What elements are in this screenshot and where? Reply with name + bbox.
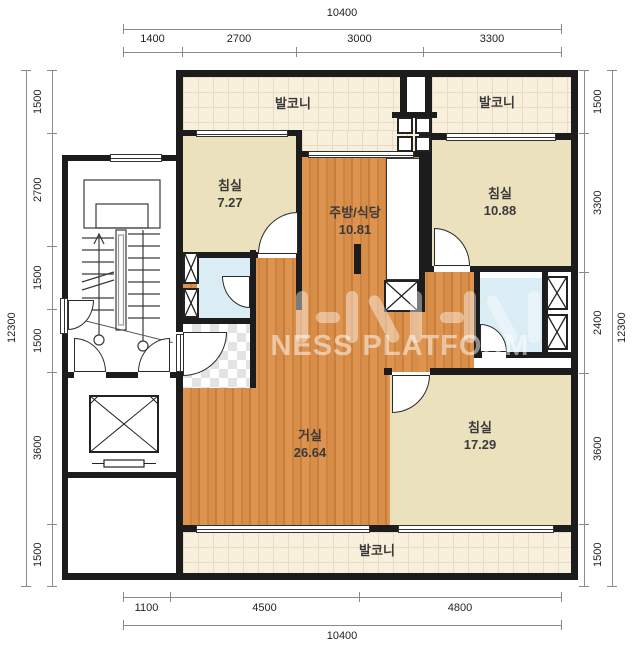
shaft-box	[183, 288, 199, 318]
wall	[62, 155, 68, 580]
wall	[62, 573, 183, 580]
dim-left-seg-5: 1500	[30, 524, 46, 586]
wall	[470, 266, 578, 272]
dimension-line	[123, 597, 561, 598]
dim-right-seg-3: 3600	[590, 373, 606, 524]
wall	[354, 244, 361, 274]
dimension-tick	[123, 24, 124, 34]
dim-left-seg-1: 2700	[30, 133, 46, 246]
duct-box	[397, 117, 413, 134]
room-area: 7.27	[180, 195, 280, 212]
dim-bottom-seg-2: 4800	[359, 601, 561, 615]
dimension-tick	[47, 524, 57, 525]
dim-right-seg-2: 2400	[590, 272, 606, 373]
wall	[425, 140, 432, 272]
dimension-tick	[47, 586, 57, 587]
dimension-tick	[47, 309, 57, 310]
dim-top-total: 10400	[123, 6, 561, 20]
dim-right-total: 12300	[614, 70, 630, 586]
dimension-tick	[123, 47, 124, 57]
window	[308, 151, 414, 158]
dimension-tick	[607, 586, 617, 587]
window	[398, 525, 554, 533]
duct-box	[397, 136, 413, 152]
window	[446, 133, 556, 141]
dimension-tick	[561, 592, 562, 602]
room-name: 발코니	[243, 96, 343, 113]
dimension-line	[123, 625, 561, 626]
room-label-bedroom-master: 침실 17.29	[430, 420, 530, 454]
window	[110, 154, 162, 162]
wall	[176, 70, 578, 77]
room-label-balcony-top-right: 발코니	[447, 95, 547, 112]
wall	[62, 472, 183, 478]
dimension-tick	[561, 620, 562, 630]
elevator	[84, 388, 164, 470]
dimension-tick	[423, 47, 424, 57]
watermark-logo-bar	[316, 312, 340, 323]
wall	[400, 70, 407, 118]
room-name: 주방/식당	[300, 205, 410, 222]
dim-left-seg-2: 1500	[30, 246, 46, 309]
room-label-kitchen-dining: 주방/식당 10.81	[300, 205, 410, 239]
room-label-living-room: 거실 26.64	[260, 428, 360, 462]
dimension-tick	[579, 272, 589, 273]
watermark-logo-bar	[440, 312, 464, 323]
dimension-tick	[579, 586, 589, 587]
dimension-tick	[579, 524, 589, 525]
duct-box	[415, 136, 431, 152]
dimension-tick	[47, 246, 57, 247]
dimension-tick	[47, 70, 57, 71]
room-label-balcony-bottom: 발코니	[327, 543, 427, 560]
room-area: 17.29	[430, 437, 530, 454]
wall	[250, 250, 256, 324]
room-label-balcony-top-left: 발코니	[243, 96, 343, 113]
dimension-line	[123, 29, 561, 30]
dim-top-seg-3: 3300	[423, 32, 561, 46]
dimension-tick	[21, 70, 31, 71]
dim-left-seg-4: 3600	[30, 372, 46, 524]
dimension-tick	[561, 24, 562, 34]
room-label-bedroom-right: 침실 10.88	[450, 186, 550, 220]
room-area: 10.81	[300, 222, 410, 239]
shaft-box	[183, 252, 199, 284]
room-area: 10.88	[450, 203, 550, 220]
watermark-text: NESS PLATFORM	[228, 330, 572, 363]
wall	[425, 266, 434, 272]
dim-bottom-seg-1: 4500	[170, 601, 359, 615]
dim-right-seg-1: 3300	[590, 133, 606, 272]
wall	[62, 372, 74, 378]
dimension-tick	[296, 47, 297, 57]
dimension-line	[123, 52, 561, 53]
dimension-tick	[359, 592, 360, 602]
dim-left-total: 12300	[4, 70, 20, 586]
wall	[170, 372, 183, 378]
dimension-tick	[170, 592, 171, 602]
dimension-tick	[561, 47, 562, 57]
room-name: 발코니	[447, 95, 547, 112]
dim-bottom-total: 10400	[123, 629, 561, 643]
room-name: 침실	[180, 178, 280, 195]
dim-top-seg-2: 3000	[296, 32, 423, 46]
room-name: 침실	[450, 186, 550, 203]
dimension-tick	[607, 70, 617, 71]
shaft-box	[546, 276, 568, 310]
dimension-tick	[21, 586, 31, 587]
dimension-line	[52, 70, 53, 586]
dim-top-seg-1: 2700	[182, 32, 296, 46]
wall	[176, 573, 578, 580]
window	[196, 130, 288, 137]
dim-bottom-seg-0: 1100	[123, 601, 170, 615]
window	[196, 525, 370, 533]
duct-box	[415, 117, 431, 134]
wall	[430, 368, 578, 375]
room-name: 거실	[260, 428, 360, 445]
wall	[176, 318, 256, 324]
room-area: 26.64	[260, 445, 360, 462]
dim-left-seg-3: 1500	[30, 309, 46, 372]
room-name: 침실	[430, 420, 530, 437]
dimension-line	[584, 70, 585, 586]
dimension-tick	[47, 372, 57, 373]
dimension-tick	[123, 592, 124, 602]
dim-top-seg-0: 1400	[123, 32, 182, 46]
dimension-tick	[182, 47, 183, 57]
dimension-tick	[47, 133, 57, 134]
floor-plan: 발코니 발코니 침실 7.27 주방/식당 10.81 침실 10.88 거실 …	[0, 0, 640, 655]
dimension-tick	[579, 70, 589, 71]
dim-right-seg-4: 1500	[590, 524, 606, 586]
wall	[106, 372, 138, 378]
wall	[384, 368, 392, 375]
dim-left-seg-0: 1500	[30, 70, 46, 133]
room-name: 발코니	[327, 543, 427, 560]
dim-right-seg-0: 1500	[590, 70, 606, 133]
dimension-line	[26, 70, 27, 586]
dimension-tick	[579, 373, 589, 374]
wall	[571, 70, 578, 580]
dimension-line	[612, 70, 613, 586]
dimension-tick	[579, 133, 589, 134]
room-label-bedroom-small: 침실 7.27	[180, 178, 280, 212]
window	[60, 298, 68, 334]
dimension-tick	[123, 620, 124, 630]
